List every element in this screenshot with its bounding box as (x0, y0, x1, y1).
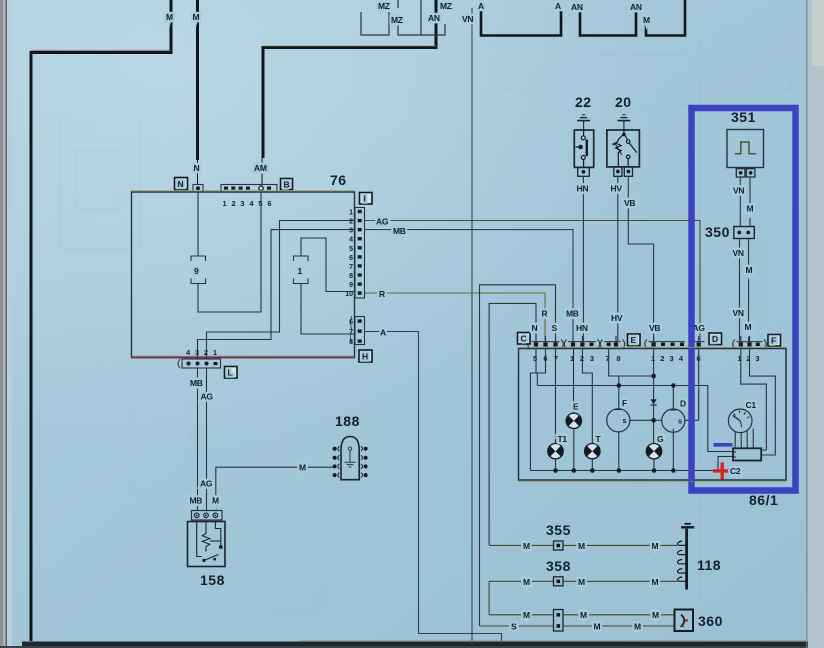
svg-text:M: M (193, 12, 200, 22)
svg-text:MZ: MZ (440, 1, 452, 11)
svg-text:4 3 2 1: 4 3 2 1 (186, 348, 217, 357)
svg-text:H: H (362, 352, 368, 362)
svg-text:R: R (542, 309, 548, 319)
svg-text:1 2 3 4 5 6: 1 2 3 4 5 6 (223, 199, 272, 208)
svg-text:B: B (284, 180, 290, 190)
svg-text:1: 1 (349, 210, 353, 217)
svg-text:22: 22 (575, 94, 592, 110)
svg-text:3: 3 (349, 228, 353, 235)
svg-text:VN: VN (733, 248, 744, 258)
svg-text:E: E (573, 402, 579, 412)
svg-text:F: F (771, 336, 776, 346)
svg-text:MB: MB (393, 226, 406, 236)
svg-text:20: 20 (615, 94, 632, 110)
svg-text:S: S (552, 323, 558, 333)
svg-text:86/1: 86/1 (749, 492, 778, 508)
svg-text:AG: AG (201, 392, 214, 402)
svg-text:2: 2 (349, 219, 353, 226)
svg-text:5: 5 (349, 246, 353, 253)
svg-text:AG: AG (376, 217, 389, 227)
svg-text:VB: VB (624, 198, 635, 208)
svg-text:C2: C2 (730, 466, 741, 476)
svg-text:M: M (578, 577, 585, 587)
svg-text:I: I (364, 194, 366, 204)
svg-text:M: M (652, 610, 659, 620)
svg-text:MB: MB (190, 496, 203, 506)
svg-text:HV: HV (611, 313, 623, 323)
svg-text:AN: AN (630, 2, 642, 12)
svg-text:AN: AN (428, 13, 440, 23)
svg-text:M: M (166, 12, 173, 22)
svg-text:1: 1 (298, 266, 303, 276)
svg-text:158: 158 (200, 572, 225, 588)
svg-text:10: 10 (345, 291, 353, 298)
svg-text:N: N (178, 179, 184, 189)
svg-text:D: D (712, 334, 718, 344)
svg-text:4: 4 (349, 237, 353, 244)
svg-text:M: M (523, 541, 530, 551)
svg-text:M: M (745, 322, 752, 332)
svg-text:MZ: MZ (378, 1, 390, 11)
svg-text:N: N (532, 323, 538, 333)
svg-text:AG: AG (200, 479, 213, 489)
svg-text:355: 355 (546, 522, 571, 538)
svg-text:118: 118 (697, 557, 721, 573)
svg-text:N: N (194, 163, 200, 173)
svg-text:AN: AN (571, 2, 583, 12)
svg-text:AM: AM (254, 163, 267, 173)
svg-text:F: F (622, 398, 627, 408)
svg-text:HN: HN (576, 323, 588, 333)
svg-text:D: D (680, 399, 686, 409)
svg-text:HN: HN (577, 184, 589, 194)
svg-text:A: A (478, 1, 484, 11)
svg-text:MZ: MZ (391, 15, 403, 25)
svg-text:MB: MB (566, 309, 579, 319)
svg-text:M: M (652, 577, 659, 587)
svg-text:M: M (578, 541, 585, 551)
svg-text:M: M (594, 622, 601, 632)
svg-text:M: M (634, 622, 641, 632)
svg-text:MB: MB (190, 378, 203, 388)
svg-text:L: L (228, 368, 233, 378)
svg-text:76: 76 (330, 172, 347, 188)
svg-text:M: M (643, 15, 650, 25)
svg-text:M: M (212, 496, 219, 506)
svg-text:C1: C1 (746, 400, 757, 410)
svg-text:M: M (747, 204, 754, 214)
svg-text:HV: HV (611, 184, 623, 194)
svg-text:S: S (511, 622, 517, 632)
svg-text:188: 188 (335, 413, 360, 429)
svg-text:6: 6 (349, 255, 353, 262)
svg-text:9: 9 (194, 266, 199, 276)
svg-text:M: M (523, 610, 530, 620)
svg-text:M: M (523, 577, 530, 587)
svg-text:R: R (379, 289, 385, 299)
svg-text:351: 351 (731, 109, 756, 125)
svg-text:7: 7 (349, 264, 353, 271)
svg-text:M: M (746, 265, 753, 275)
svg-text:s: s (623, 416, 627, 425)
svg-text:350: 350 (705, 224, 730, 240)
svg-text:360: 360 (698, 613, 723, 629)
svg-text:M: M (580, 610, 587, 620)
svg-text:A: A (380, 328, 386, 338)
svg-text:VN: VN (733, 308, 744, 318)
svg-text:VN: VN (462, 14, 473, 24)
svg-text:M: M (299, 463, 306, 473)
svg-text:VB: VB (649, 323, 660, 333)
svg-text:G: G (657, 434, 664, 444)
svg-text:M: M (652, 541, 659, 551)
svg-text:E: E (631, 335, 637, 345)
svg-text:9: 9 (349, 282, 353, 289)
svg-text:T1: T1 (558, 434, 568, 444)
svg-text:8: 8 (349, 273, 353, 280)
svg-text:VN: VN (733, 186, 744, 196)
svg-text:1 2 3 4: 1 2 3 4 (651, 354, 684, 363)
svg-text:7 8: 7 8 (606, 354, 621, 363)
svg-text:A: A (555, 1, 561, 11)
svg-text:s: s (678, 417, 682, 426)
svg-text:358: 358 (546, 558, 571, 574)
svg-text:C: C (521, 334, 527, 344)
